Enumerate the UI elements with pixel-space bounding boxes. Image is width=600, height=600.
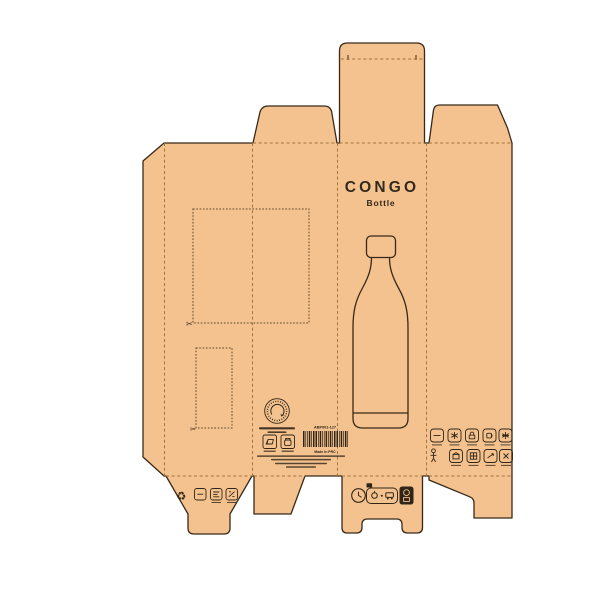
scissors-icon: ✂ (190, 427, 196, 434)
product-code: ABP001-127 (314, 426, 336, 430)
recycle-triangle-icon: ♻ (176, 491, 186, 503)
dark-qr-badge (400, 487, 414, 505)
packaging-dieline-artboard: ✂ ✂ CONGO Bottle (0, 0, 600, 600)
origin-label: Made in PRC (314, 450, 336, 454)
scissors-icon: ✂ (186, 320, 193, 329)
badge-tab (367, 483, 373, 487)
dieline-drawing: ✂ ✂ CONGO Bottle (0, 0, 600, 600)
brand-subtitle: Bottle (367, 198, 396, 208)
brand-title: CONGO (345, 179, 420, 196)
